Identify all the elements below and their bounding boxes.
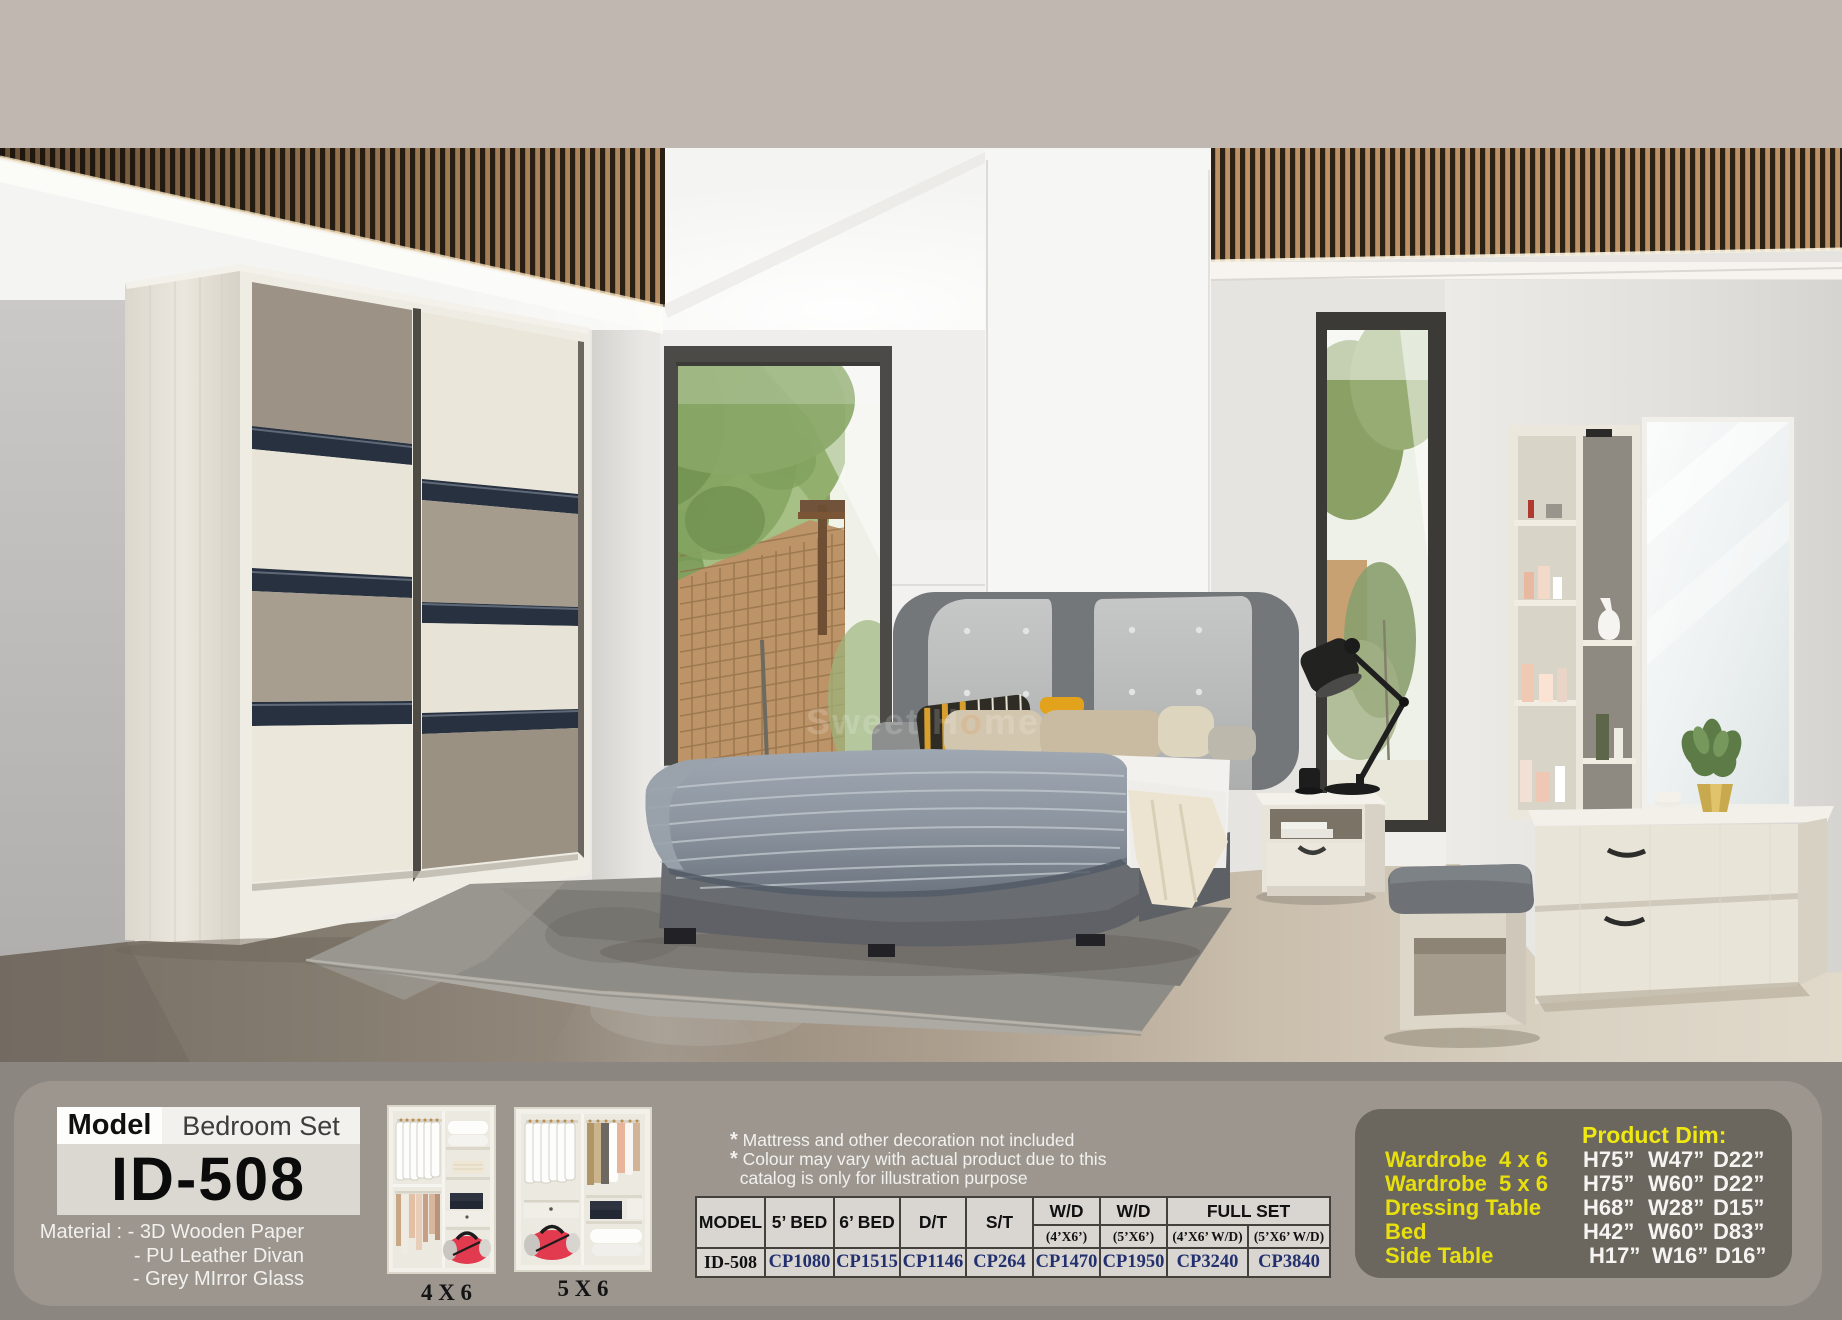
svg-text:Sweet Home: Sweet Home	[806, 701, 1040, 742]
